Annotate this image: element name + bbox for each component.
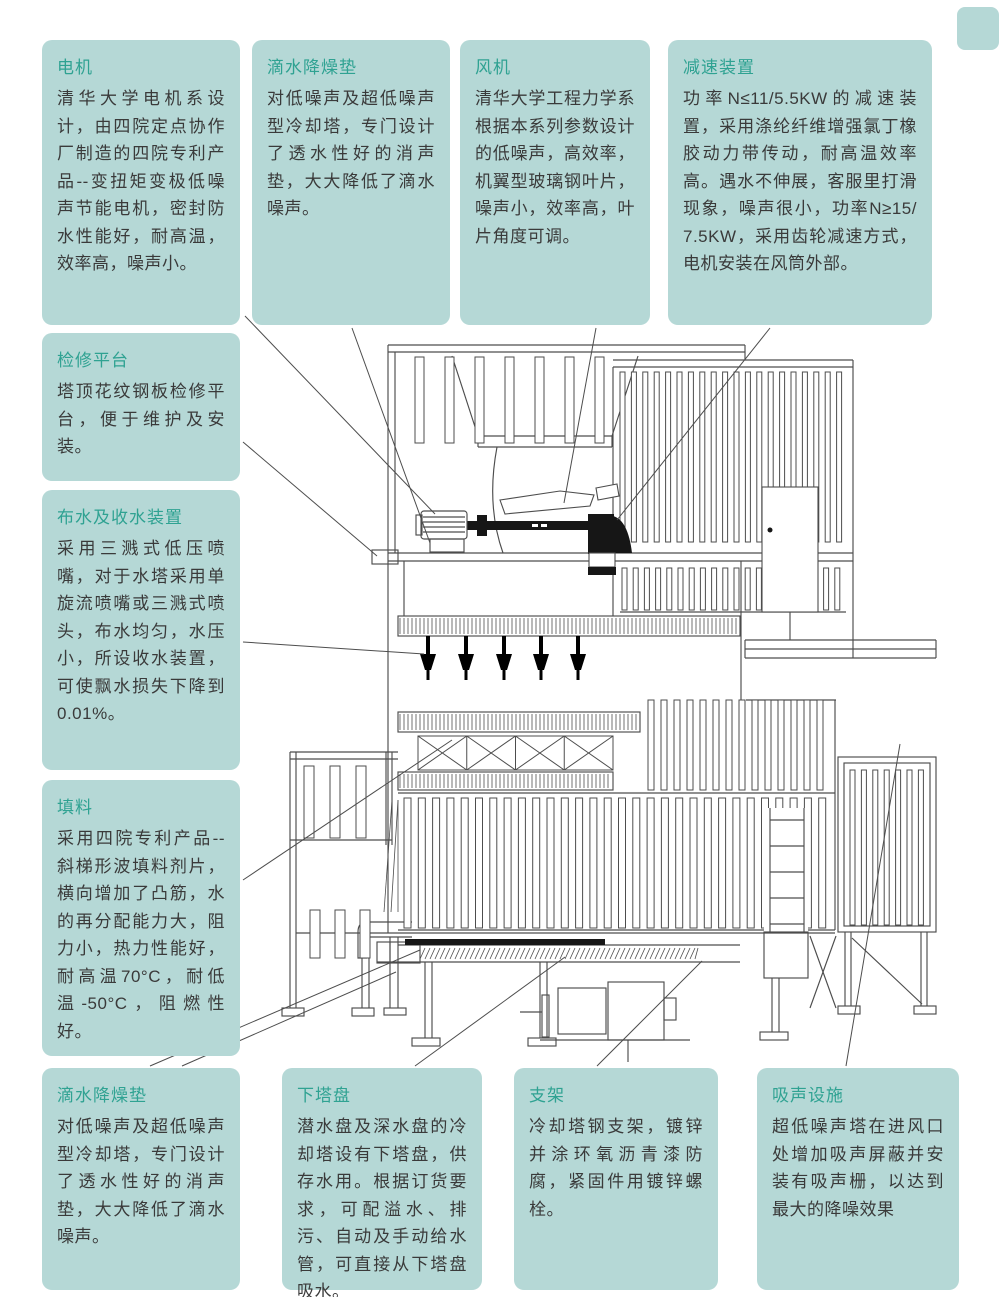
spray-nozzles — [420, 636, 586, 684]
callout-title: 检修平台 — [57, 346, 225, 371]
left-upper-slats — [304, 766, 366, 838]
corner-accent-square — [957, 7, 999, 50]
callout-body: 清华大学电机系设计，由四院定点协作厂制造的四院专利产品--变扭矩变极低噪声节能电… — [57, 85, 225, 278]
callout-body: 对低噪声及超低噪声型冷却塔，专门设计了透水性好的消声垫，大大降低了滴水噪声。 — [267, 85, 435, 223]
fan-blade-right — [596, 484, 619, 500]
callout-title: 布水及收水装置 — [57, 503, 225, 528]
callout-platform: 检修平台 塔顶花纹钢板检修平台，便于维护及安装。 — [42, 333, 240, 481]
callout-sound-absorber: 吸声设施 超低噪声塔在进风口处增加吸声屏蔽并安装有吸声栅，以达到最大的降噪效果 — [757, 1068, 959, 1290]
truss-band — [418, 736, 613, 770]
collector-hatch — [400, 714, 636, 730]
callout-drip-pad-top: 滴水降燥垫 对低噪声及超低噪声型冷却塔，专门设计了透水性好的消声垫，大大降低了滴… — [252, 40, 450, 325]
reducer-box — [762, 487, 818, 640]
callout-title: 填料 — [57, 793, 225, 818]
basin-pad-line — [405, 939, 605, 945]
callout-reducer: 减速装置 功率N≤11/5.5KW的减速装置，采用涤纶纤维增强氯丁橡胶动力带传动… — [668, 40, 932, 325]
callout-water-device: 布水及收水装置 采用三溅式低压喷嘴，对于水塔采用单旋流喷嘴或三溅式喷头，布水均匀… — [42, 490, 240, 770]
callout-title: 风机 — [475, 53, 635, 78]
callout-drip-pad-bottom: 滴水降燥垫 对低噪声及超低噪声型冷却塔，专门设计了透水性好的消声垫，大大降低了滴… — [42, 1068, 240, 1290]
callout-body: 超低噪声塔在进风口处增加吸声屏蔽并安装有吸声栅，以达到最大的降噪效果 — [772, 1113, 944, 1223]
fan-hub — [588, 514, 614, 554]
pipe-flange — [384, 1008, 406, 1015]
platform-step — [372, 550, 398, 564]
pump-body — [558, 988, 606, 1034]
top-louvers — [415, 357, 604, 443]
left-lower-slats — [310, 910, 370, 958]
basin-pad-hatch — [420, 948, 698, 959]
callout-fan: 风机 清华大学工程力学系根据本系列参数设计的低噪声，高效率，机翼型玻璃钢叶片，噪… — [460, 40, 650, 325]
callout-body: 塔顶花纹钢板检修平台，便于维护及安装。 — [57, 378, 225, 461]
callout-body: 对低噪声及超低噪声型冷却塔，专门设计了透水性好的消声垫，大大降低了滴水噪声。 — [57, 1113, 225, 1251]
brochure-page: 电机 清华大学电机系设计，由四院定点协作厂制造的四院专利产品--变扭矩变极低噪声… — [0, 0, 1000, 1297]
callout-title: 吸声设施 — [772, 1081, 944, 1106]
callout-title: 电机 — [57, 53, 225, 78]
callout-body: 潜水盘及深水盘的冷却塔设有下塔盘，供存水用。根据订货要求，可配溢水、排污、自动及… — [297, 1113, 467, 1297]
fill-slats — [404, 798, 826, 928]
hatch-band — [398, 772, 613, 790]
mid-right-louvers — [648, 700, 823, 790]
motor-drawing — [416, 511, 467, 552]
callout-lower-basin: 下塔盘 潜水盘及深水盘的冷却塔设有下塔盘，供存水用。根据订货要求，可配溢水、排污… — [282, 1068, 482, 1290]
callout-motor: 电机 清华大学电机系设计，由四院定点协作厂制造的四院专利产品--变扭矩变极低噪声… — [42, 40, 240, 325]
callout-title: 减速装置 — [683, 53, 917, 78]
callout-fill-media: 填料 采用四院专利产品--斜梯形波填料剂片，横向增加了凸筋，水的再分配能力大，阻… — [42, 780, 240, 1056]
spray-header — [398, 616, 740, 636]
leader-lines — [150, 316, 900, 1066]
callout-title: 下塔盘 — [297, 1081, 467, 1106]
callout-body: 功率N≤11/5.5KW的减速装置，采用涤纶纤维增强氯丁橡胶动力带传动，耐高温效… — [683, 85, 917, 278]
callout-body: 采用三溅式低压喷嘴，对于水塔采用单旋流喷嘴或三溅式喷头，布水均匀，水压小，所设收… — [57, 535, 225, 728]
coupling — [477, 515, 487, 536]
spray-hatch — [400, 618, 736, 634]
sound-panel-slats — [850, 770, 923, 925]
ladder — [764, 808, 808, 978]
callout-title: 滴水降燥垫 — [267, 53, 435, 78]
callout-body: 采用四院专利产品--斜梯形波填料剂片，横向增加了凸筋，水的再分配能力大，阻力小，… — [57, 825, 225, 1045]
callout-title: 滴水降燥垫 — [57, 1081, 225, 1106]
callout-body: 冷却塔钢支架，镀锌并涂环氧沥青漆防腐，紧固件用镀锌螺栓。 — [529, 1113, 703, 1223]
fan-blade-left — [500, 491, 594, 514]
lower-hatch — [400, 774, 608, 788]
callout-title: 支架 — [529, 1081, 703, 1106]
callout-body: 清华大学工程力学系根据本系列参数设计的低噪声，高效率，机翼型玻璃钢叶片，噪声小，… — [475, 85, 635, 250]
callout-support: 支架 冷却塔钢支架，镀锌并涂环氧沥青漆防腐，紧固件用镀锌螺栓。 — [514, 1068, 718, 1290]
